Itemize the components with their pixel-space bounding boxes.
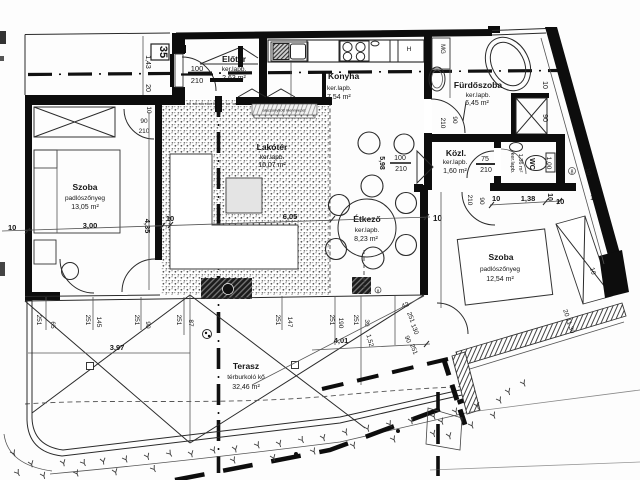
svg-text:padlószőnyeg: padlószőnyeg <box>480 266 520 273</box>
svg-text:ker.lapb.: ker.lapb. <box>222 66 247 73</box>
svg-text:Fürdőszoba: Fürdőszoba <box>454 80 502 90</box>
svg-text:10: 10 <box>8 223 16 232</box>
svg-text:10: 10 <box>492 194 500 203</box>
svg-text:2,63 m²: 2,63 m² <box>222 75 246 82</box>
svg-text:10: 10 <box>541 81 548 89</box>
svg-text:Szoba: Szoba <box>488 252 513 262</box>
svg-text:ker.lapb.: ker.lapb. <box>355 227 380 234</box>
svg-text:251: 251 <box>35 315 42 326</box>
svg-text:ker.lapb.: ker.lapb. <box>466 92 491 99</box>
svg-text:210: 210 <box>395 166 407 173</box>
svg-text:1,36 m²: 1,36 m² <box>517 154 523 173</box>
svg-text:3,97: 3,97 <box>110 343 125 352</box>
svg-text:251: 251 <box>175 315 182 326</box>
svg-text:190: 190 <box>337 318 344 329</box>
svg-text:Szoba: Szoba <box>72 182 97 192</box>
svg-text:210: 210 <box>480 167 492 174</box>
svg-text:87: 87 <box>187 319 194 327</box>
svg-text:35: 35 <box>157 46 169 58</box>
svg-text:12,54 m²: 12,54 m² <box>486 276 514 283</box>
svg-text:90: 90 <box>451 116 458 124</box>
svg-text:3,00: 3,00 <box>83 221 98 230</box>
svg-text:10: 10 <box>556 197 564 206</box>
svg-text:10: 10 <box>546 193 553 201</box>
svg-text:90: 90 <box>140 118 148 125</box>
svg-text:MG: MG <box>439 44 445 54</box>
svg-text:6,05: 6,05 <box>283 212 298 221</box>
svg-text:ker.lapb.: ker.lapb. <box>327 85 352 92</box>
svg-text:32,46 m²: 32,46 m² <box>232 384 260 391</box>
svg-text:ker.lapb.: ker.lapb. <box>260 154 285 161</box>
svg-text:ker.lapb.: ker.lapb. <box>443 159 468 166</box>
svg-text:90: 90 <box>541 114 548 122</box>
svg-text:210: 210 <box>439 118 446 129</box>
svg-text:210: 210 <box>139 128 150 135</box>
svg-text:251: 251 <box>84 315 91 326</box>
svg-text:Konyha: Konyha <box>328 71 359 81</box>
svg-text:13,05 m²: 13,05 m² <box>71 204 99 211</box>
svg-text:145: 145 <box>95 317 102 328</box>
svg-text:90: 90 <box>478 197 485 205</box>
svg-text:8: 8 <box>571 170 574 176</box>
svg-text:8,23 m²: 8,23 m² <box>354 236 378 243</box>
svg-text:251: 251 <box>328 315 335 326</box>
svg-text:100: 100 <box>394 155 406 162</box>
svg-text:térburkoló kő: térburkoló kő <box>227 374 265 381</box>
svg-text:Terasz: Terasz <box>233 361 259 371</box>
svg-text:Előtér: Előtér <box>222 54 247 64</box>
svg-text:Lakótér: Lakótér <box>257 142 288 152</box>
svg-text:210: 210 <box>191 76 204 85</box>
svg-text:16,07 m²: 16,07 m² <box>258 162 286 169</box>
svg-text:251: 251 <box>274 315 281 326</box>
svg-text:251: 251 <box>133 315 140 326</box>
svg-text:20: 20 <box>144 84 151 92</box>
svg-text:75: 75 <box>481 156 489 163</box>
svg-text:100: 100 <box>191 64 204 73</box>
svg-text:10: 10 <box>145 106 152 114</box>
svg-text:5,98: 5,98 <box>378 156 385 170</box>
svg-text:ker.lapb.: ker.lapb. <box>509 153 515 174</box>
svg-text:147: 147 <box>286 317 293 328</box>
svg-text:1,43: 1,43 <box>144 55 151 69</box>
svg-text:6,45 m²: 6,45 m² <box>465 100 489 107</box>
svg-text:WC: WC <box>528 158 535 170</box>
svg-text:1,60 m²: 1,60 m² <box>443 168 467 175</box>
svg-text:H: H <box>407 46 412 53</box>
svg-text:Közl.: Közl. <box>446 148 466 158</box>
svg-text:1,00: 1,00 <box>545 157 552 170</box>
svg-text:210: 210 <box>466 195 473 206</box>
svg-text:251: 251 <box>352 315 359 326</box>
svg-text:padlószőnyeg: padlószőnyeg <box>65 195 105 202</box>
svg-text:1,38: 1,38 <box>521 194 536 203</box>
svg-text:7,54 m²: 7,54 m² <box>327 94 351 101</box>
svg-text:4,01: 4,01 <box>334 336 349 345</box>
svg-text:alacsonyitott mennyezet: alacsonyitott mennyezet <box>263 108 307 113</box>
svg-text:10: 10 <box>166 214 174 223</box>
